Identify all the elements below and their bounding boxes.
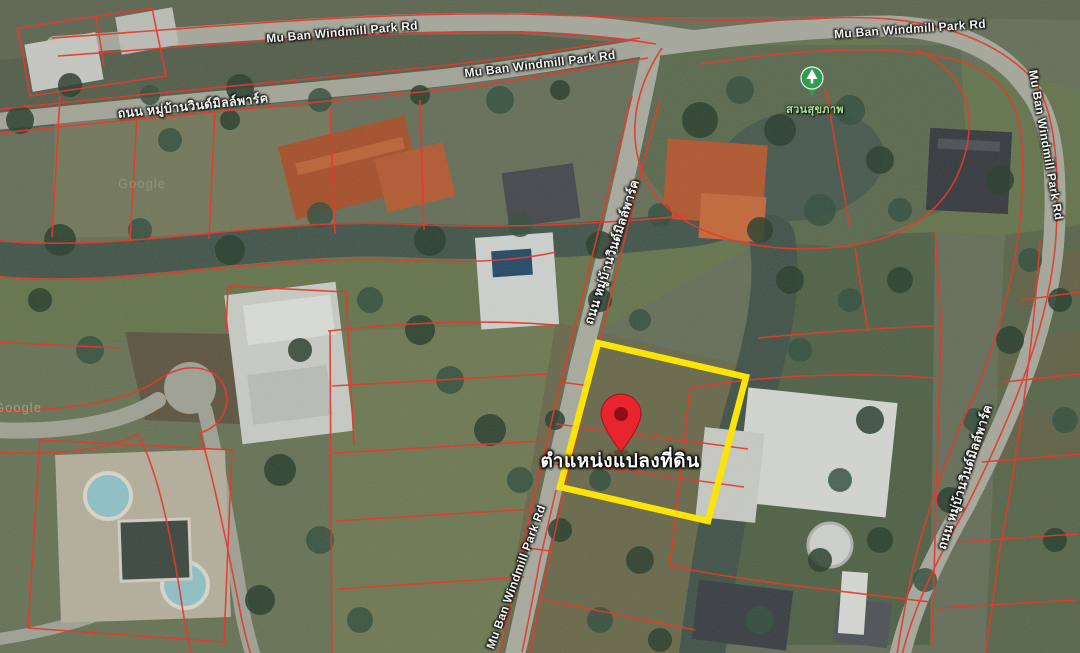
- satellite-texture: [0, 0, 1080, 653]
- satellite-basemap-svg: [0, 0, 1080, 653]
- satellite-map[interactable]: Mu Ban Windmill Park Rd Mu Ban Windmill …: [0, 0, 1080, 653]
